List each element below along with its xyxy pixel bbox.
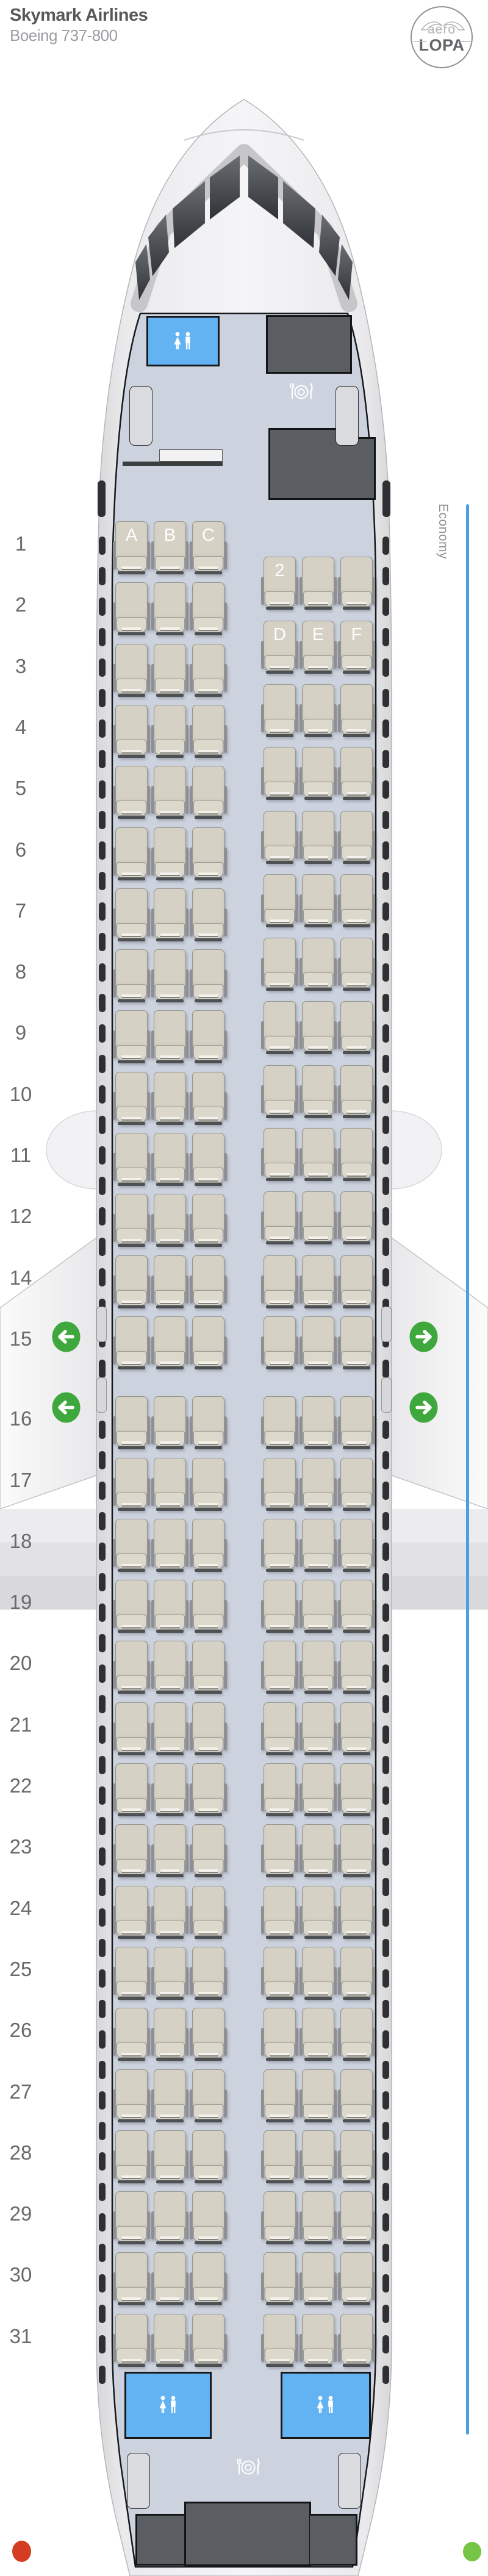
cabin-window-icon — [382, 1482, 389, 1500]
seat-26C[interactable] — [191, 2008, 226, 2059]
seat-cushion — [193, 2043, 223, 2058]
seat-8E[interactable] — [301, 938, 335, 989]
seat-frame — [156, 1997, 184, 2000]
seat-25A[interactable] — [114, 1947, 149, 1998]
seat-4F[interactable] — [339, 684, 374, 735]
seat-cushion — [303, 1675, 333, 1691]
seat-3E[interactable]: E — [301, 621, 335, 672]
seat-back — [264, 1580, 296, 1618]
seat-18E[interactable] — [301, 1519, 335, 1570]
seat-16F[interactable] — [339, 1396, 374, 1447]
seat-18B[interactable] — [152, 1519, 187, 1570]
seat-21F[interactable] — [339, 1702, 374, 1754]
seat-31B[interactable] — [152, 2314, 187, 2365]
seat-23C[interactable] — [191, 1824, 226, 1875]
seat-cushion — [303, 1554, 333, 1569]
seat-5A[interactable] — [114, 766, 149, 817]
seat-cushion — [193, 2226, 223, 2241]
row-number-14: 14 — [4, 1266, 38, 1290]
seat-25B[interactable] — [152, 1947, 187, 1998]
seat-29F[interactable] — [339, 2191, 374, 2242]
seat-cushion — [303, 1290, 333, 1305]
seat-cushion — [265, 655, 295, 671]
seat-back — [192, 949, 224, 987]
seat-11E[interactable] — [301, 1128, 335, 1179]
seat-17B[interactable] — [152, 1458, 187, 1509]
seat-26E[interactable] — [301, 2008, 335, 2059]
seat-back — [302, 1316, 334, 1354]
seat-14D[interactable] — [262, 1255, 297, 1307]
seat-frame — [156, 1122, 184, 1125]
seat-8B[interactable] — [152, 949, 187, 1001]
seat-19B[interactable] — [152, 1580, 187, 1631]
seat-label: C — [191, 526, 226, 546]
seat-frame — [266, 1508, 293, 1511]
seat-9C[interactable] — [191, 1010, 226, 1061]
seat-8C[interactable] — [191, 949, 226, 1001]
seat-cushion — [193, 1168, 223, 1183]
seat-30B[interactable] — [152, 2252, 187, 2303]
seat-back — [154, 582, 186, 620]
seat-30F[interactable] — [339, 2252, 374, 2303]
seat-23E[interactable] — [301, 1824, 335, 1875]
cabin-window-icon — [99, 1421, 106, 1439]
cabin-window-icon — [382, 994, 389, 1012]
seat-back — [115, 1010, 148, 1048]
cabin-window-icon — [382, 2122, 389, 2140]
seat-27B[interactable] — [152, 2069, 187, 2121]
seat-2F[interactable] — [339, 557, 374, 608]
cabin-window-icon — [99, 841, 106, 860]
seat-21C[interactable] — [191, 1702, 226, 1754]
seat-frame — [266, 797, 293, 800]
seat-25F[interactable] — [339, 1947, 374, 1998]
seat-27A[interactable] — [114, 2069, 149, 2121]
seat-3C[interactable] — [191, 644, 226, 695]
seat-frame — [343, 2119, 370, 2122]
seat-20A[interactable] — [114, 1641, 149, 1692]
seat-17D[interactable] — [262, 1458, 297, 1509]
seat-back — [115, 644, 148, 682]
seat-17E[interactable] — [301, 1458, 335, 1509]
seat-cushion — [303, 909, 333, 924]
seat-frame — [195, 2119, 222, 2122]
seat-20F[interactable] — [339, 1641, 374, 1692]
seat-frame — [343, 1813, 370, 1816]
seat-31E[interactable] — [301, 2314, 335, 2365]
seat-frame — [343, 2302, 370, 2305]
seat-15A[interactable] — [114, 1316, 149, 1368]
seat-9B[interactable] — [152, 1010, 187, 1061]
seat-14E[interactable] — [301, 1255, 335, 1307]
seat-2C[interactable] — [191, 582, 226, 633]
seat-12B[interactable] — [152, 1194, 187, 1245]
seat-cushion — [117, 2287, 146, 2302]
seat-2A[interactable] — [114, 582, 149, 633]
seat-28E[interactable] — [301, 2130, 335, 2182]
seat-29C[interactable] — [191, 2191, 226, 2242]
seat-frame — [266, 1630, 293, 1633]
seat-cushion — [303, 2287, 333, 2302]
seat-22A[interactable] — [114, 1763, 149, 1814]
seat-cushion — [265, 1100, 295, 1115]
seat-14F[interactable] — [339, 1255, 374, 1307]
seat-28B[interactable] — [152, 2130, 187, 2182]
seat-cushion — [155, 862, 185, 877]
seat-10B[interactable] — [152, 1072, 187, 1123]
seat-5C[interactable] — [191, 766, 226, 817]
seat-25D[interactable] — [262, 1947, 297, 1998]
seat-cushion — [155, 1229, 185, 1244]
seat-17C[interactable] — [191, 1458, 226, 1509]
seat-back — [302, 1519, 334, 1557]
row-number-11: 11 — [4, 1144, 38, 1167]
seat-back — [115, 1641, 148, 1679]
seat-cushion — [117, 1107, 146, 1122]
seat-23D[interactable] — [262, 1824, 297, 1875]
seat-3F[interactable]: F — [339, 621, 374, 672]
cabin-window-icon — [382, 1512, 389, 1530]
seat-2B[interactable] — [152, 582, 187, 633]
seat-frame — [343, 1178, 370, 1181]
seat-28C[interactable] — [191, 2130, 226, 2182]
seat-18D[interactable] — [262, 1519, 297, 1570]
seat-5F[interactable] — [339, 747, 374, 798]
seat-11A[interactable] — [114, 1133, 149, 1184]
seat-19C[interactable] — [191, 1580, 226, 1631]
seat-19A[interactable] — [114, 1580, 149, 1631]
seat-23F[interactable] — [339, 1824, 374, 1875]
seat-14C[interactable] — [191, 1255, 226, 1307]
seat-16D[interactable] — [262, 1396, 297, 1447]
seat-18F[interactable] — [339, 1519, 374, 1570]
seat-12E[interactable] — [301, 1191, 335, 1243]
seat-7F[interactable] — [339, 874, 374, 926]
seat-back — [264, 938, 296, 976]
seat-11C[interactable] — [191, 1133, 226, 1184]
seat-14A[interactable] — [114, 1255, 149, 1307]
seat-3D[interactable]: D — [262, 621, 297, 672]
cabin-window-icon — [382, 1421, 389, 1439]
seat-22B[interactable] — [152, 1763, 187, 1814]
seat-7E[interactable] — [301, 874, 335, 926]
seat-26A[interactable] — [114, 2008, 149, 2059]
row-number-2: 2 — [4, 593, 38, 616]
seat-frame — [343, 1366, 370, 1369]
seat-4E[interactable] — [301, 684, 335, 735]
seat-frame — [266, 671, 293, 674]
seat-31C[interactable] — [191, 2314, 226, 2365]
seat-cushion — [117, 984, 146, 999]
seat-15E[interactable] — [301, 1316, 335, 1368]
seat-10E[interactable] — [301, 1065, 335, 1116]
seat-8D[interactable] — [262, 938, 297, 989]
seat-back — [154, 2130, 186, 2168]
seat-cushion — [303, 591, 333, 607]
seat-back — [192, 2008, 224, 2046]
seat-back — [264, 1396, 296, 1434]
seat-2D[interactable]: 2 — [262, 557, 297, 608]
seat-7A[interactable] — [114, 888, 149, 940]
seat-2E[interactable] — [301, 557, 335, 608]
seat-26B[interactable] — [152, 2008, 187, 2059]
seat-28D[interactable] — [262, 2130, 297, 2182]
cabin-window-icon — [382, 1664, 389, 1683]
seat-frame — [195, 2241, 222, 2244]
seat-back — [302, 1396, 334, 1434]
seat-frame — [343, 924, 370, 927]
seat-frame — [266, 1569, 293, 1572]
aerolopa-logo[interactable]: aero LOPA — [411, 6, 473, 68]
seat-back — [340, 1316, 373, 1354]
seat-back — [192, 582, 224, 620]
seat-6B[interactable] — [152, 827, 187, 879]
cabin-window-icon — [382, 1268, 389, 1286]
seat-cushion — [117, 1982, 146, 1997]
seat-cushion — [193, 556, 223, 571]
seat-30A[interactable] — [114, 2252, 149, 2303]
seat-7B[interactable] — [152, 888, 187, 940]
seat-9A[interactable] — [114, 1010, 149, 1061]
seat-12D[interactable] — [262, 1191, 297, 1243]
seat-back — [302, 747, 334, 785]
seat-28A[interactable] — [114, 2130, 149, 2182]
seat-10D[interactable] — [262, 1065, 297, 1116]
seat-18C[interactable] — [191, 1519, 226, 1570]
seat-25C[interactable] — [191, 1947, 226, 1998]
seat-frame — [266, 1936, 293, 1939]
seat-back — [340, 557, 373, 594]
seat-1A[interactable]: A — [114, 521, 149, 573]
seat-6E[interactable] — [301, 811, 335, 862]
seat-frame — [156, 2180, 184, 2183]
seat-27C[interactable] — [191, 2069, 226, 2121]
seat-16E[interactable] — [301, 1396, 335, 1447]
seat-24F[interactable] — [339, 1886, 374, 1937]
seat-frame — [266, 1305, 293, 1308]
seat-20B[interactable] — [152, 1641, 187, 1692]
cabin-window-icon — [382, 750, 389, 768]
overwing-exit-hatch-left — [96, 1307, 107, 1342]
seat-frame — [343, 2180, 370, 2183]
seat-29A[interactable] — [114, 2191, 149, 2242]
cabin-window-icon — [382, 2305, 389, 2323]
seat-29E[interactable] — [301, 2191, 335, 2242]
seat-10F[interactable] — [339, 1065, 374, 1116]
seat-frame — [118, 1183, 145, 1186]
seat-21B[interactable] — [152, 1702, 187, 1754]
seat-back — [115, 2191, 148, 2229]
seat-12C[interactable] — [191, 1194, 226, 1245]
seat-30C[interactable] — [191, 2252, 226, 2303]
seat-frame — [156, 999, 184, 1002]
seat-15F[interactable] — [339, 1316, 374, 1368]
row-number-21: 21 — [4, 1713, 38, 1736]
seat-1C[interactable]: C — [191, 521, 226, 573]
seat-15C[interactable] — [191, 1316, 226, 1368]
seat-back — [264, 1191, 296, 1229]
seat-22F[interactable] — [339, 1763, 374, 1814]
seat-4C[interactable] — [191, 705, 226, 756]
seat-back — [264, 2008, 296, 2046]
seat-20C[interactable] — [191, 1641, 226, 1692]
cabin-window-icon — [382, 537, 389, 555]
seat-11F[interactable] — [339, 1128, 374, 1179]
seat-19E[interactable] — [301, 1580, 335, 1631]
seat-3B[interactable] — [152, 644, 187, 695]
cabin-window-icon — [99, 1695, 106, 1713]
cabin-window-icon — [382, 1634, 389, 1652]
seat-19F[interactable] — [339, 1580, 374, 1631]
seat-23B[interactable] — [152, 1824, 187, 1875]
seat-back — [115, 1458, 148, 1496]
seat-back — [340, 1255, 373, 1293]
cabin-window-icon — [382, 2152, 389, 2171]
seat-24E[interactable] — [301, 1886, 335, 1937]
seat-label: B — [152, 526, 187, 546]
seat-5D[interactable] — [262, 747, 297, 798]
seat-cushion — [155, 2226, 185, 2241]
seat-4A[interactable] — [114, 705, 149, 756]
seat-23A[interactable] — [114, 1824, 149, 1875]
logo-wings-icon — [412, 7, 474, 70]
seat-12F[interactable] — [339, 1191, 374, 1243]
seat-25E[interactable] — [301, 1947, 335, 1998]
seat-27D[interactable] — [262, 2069, 297, 2121]
seat-21A[interactable] — [114, 1702, 149, 1754]
seat-31F[interactable] — [339, 2314, 374, 2365]
row-number-29: 29 — [4, 2202, 38, 2225]
seat-20D[interactable] — [262, 1641, 297, 1692]
seat-27E[interactable] — [301, 2069, 335, 2121]
seat-22E[interactable] — [301, 1763, 335, 1814]
seat-4D[interactable] — [262, 684, 297, 735]
seat-6A[interactable] — [114, 827, 149, 879]
seat-9F[interactable] — [339, 1001, 374, 1052]
seat-9D[interactable] — [262, 1001, 297, 1052]
seat-10A[interactable] — [114, 1072, 149, 1123]
seat-5E[interactable] — [301, 747, 335, 798]
seat-21E[interactable] — [301, 1702, 335, 1754]
seat-cushion — [117, 1431, 146, 1446]
seat-frame — [304, 1241, 332, 1244]
seat-17F[interactable] — [339, 1458, 374, 1509]
seat-3A[interactable] — [114, 644, 149, 695]
seat-15B[interactable] — [152, 1316, 187, 1368]
seat-8A[interactable] — [114, 949, 149, 1001]
seat-29B[interactable] — [152, 2191, 187, 2242]
seat-21D[interactable] — [262, 1702, 297, 1754]
seat-frame — [195, 1874, 222, 1877]
seat-4B[interactable] — [152, 705, 187, 756]
cabin-window-icon — [99, 1908, 106, 1927]
cabin-window-icon — [99, 1634, 106, 1652]
seat-frame — [195, 999, 222, 1002]
seat-frame — [195, 877, 222, 880]
seat-16C[interactable] — [191, 1396, 226, 1447]
seat-frame — [343, 2058, 370, 2061]
seat-back — [340, 1519, 373, 1557]
seat-27F[interactable] — [339, 2069, 374, 2121]
seat-19D[interactable] — [262, 1580, 297, 1631]
seat-17A[interactable] — [114, 1458, 149, 1509]
seat-9E[interactable] — [301, 1001, 335, 1052]
seat-back — [264, 1458, 296, 1496]
seat-cushion — [265, 1036, 295, 1051]
cabin-window-icon — [99, 2305, 106, 2323]
seat-map-page: Skymark Airlines Boeing 737-800 aero LOP… — [0, 0, 488, 2576]
seat-16B[interactable] — [152, 1396, 187, 1447]
seat-31A[interactable] — [114, 2314, 149, 2365]
seat-11D[interactable] — [262, 1128, 297, 1179]
seat-cushion — [265, 1859, 295, 1874]
seat-frame — [118, 694, 145, 697]
seat-29D[interactable] — [262, 2191, 297, 2242]
seat-cushion — [155, 2104, 185, 2119]
seat-14B[interactable] — [152, 1255, 187, 1307]
seat-cushion — [117, 2349, 146, 2364]
cabin-window-icon — [99, 2061, 106, 2079]
seat-24A[interactable] — [114, 1886, 149, 1937]
seat-frame — [118, 632, 145, 635]
seat-15D[interactable] — [262, 1316, 297, 1368]
seat-30E[interactable] — [301, 2252, 335, 2303]
seat-20E[interactable] — [301, 1641, 335, 1692]
seat-back — [340, 2191, 373, 2229]
seat-10C[interactable] — [191, 1072, 226, 1123]
seat-back — [192, 1255, 224, 1293]
seat-7C[interactable] — [191, 888, 226, 940]
seat-31D[interactable] — [262, 2314, 297, 2365]
seat-7D[interactable] — [262, 874, 297, 926]
seat-30D[interactable] — [262, 2252, 297, 2303]
seat-back — [340, 747, 373, 785]
seat-6F[interactable] — [339, 811, 374, 862]
seat-back — [302, 1458, 334, 1496]
row-number-16: 16 — [4, 1407, 38, 1430]
red-marker-dot — [12, 2541, 31, 2562]
seat-22C[interactable] — [191, 1763, 226, 1814]
seat-back — [192, 1886, 224, 1924]
seat-24C[interactable] — [191, 1886, 226, 1937]
seat-24D[interactable] — [262, 1886, 297, 1937]
rear-galley-service-icon — [235, 2455, 261, 2483]
seat-22D[interactable] — [262, 1763, 297, 1814]
seat-5B[interactable] — [152, 766, 187, 817]
seat-26D[interactable] — [262, 2008, 297, 2059]
seat-16A[interactable] — [114, 1396, 149, 1447]
seat-cushion — [155, 1045, 185, 1060]
seat-frame — [304, 734, 332, 737]
cabin-window-icon — [99, 1664, 106, 1683]
seat-frame — [304, 861, 332, 864]
cabin-window-icon — [99, 933, 106, 951]
seat-frame — [195, 1244, 222, 1247]
seat-11B[interactable] — [152, 1133, 187, 1184]
seat-28F[interactable] — [339, 2130, 374, 2182]
seat-6C[interactable] — [191, 827, 226, 879]
seat-26F[interactable] — [339, 2008, 374, 2059]
seat-6D[interactable] — [262, 811, 297, 862]
seat-back — [115, 2069, 148, 2107]
seat-24B[interactable] — [152, 1886, 187, 1937]
seat-cushion — [342, 846, 371, 861]
seat-1B[interactable]: B — [152, 521, 187, 573]
seat-18A[interactable] — [114, 1519, 149, 1570]
seat-8F[interactable] — [339, 938, 374, 989]
seat-12A[interactable] — [114, 1194, 149, 1245]
seat-back — [340, 1886, 373, 1924]
